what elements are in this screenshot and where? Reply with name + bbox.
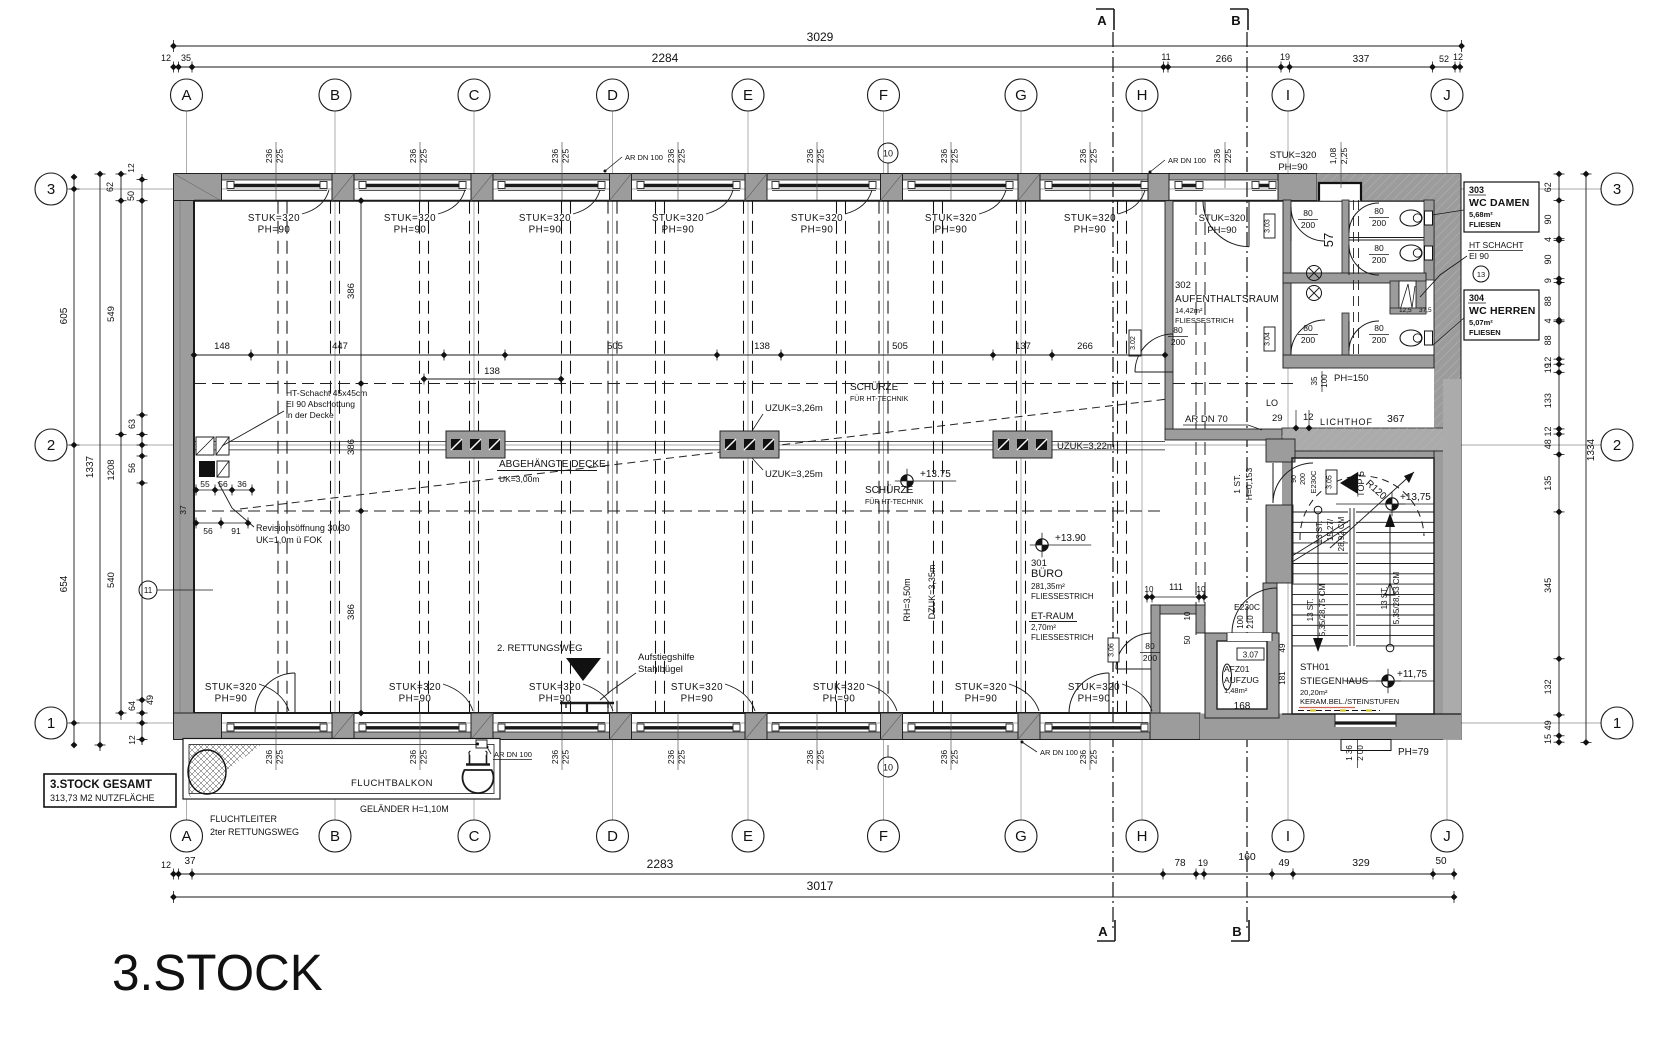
svg-text:266: 266 bbox=[1216, 54, 1233, 65]
svg-text:PH=90: PH=90 bbox=[1207, 225, 1236, 236]
svg-text:80: 80 bbox=[1303, 323, 1313, 333]
svg-text:ABGEHÄNGTE DECKE: ABGEHÄNGTE DECKE bbox=[499, 458, 606, 470]
svg-text:48: 48 bbox=[1543, 439, 1553, 449]
svg-text:3.07: 3.07 bbox=[1243, 651, 1259, 660]
svg-text:225: 225 bbox=[1223, 149, 1233, 163]
svg-text:2284: 2284 bbox=[652, 51, 679, 65]
svg-text:1: 1 bbox=[1613, 715, 1621, 732]
svg-text:236: 236 bbox=[1212, 149, 1222, 163]
svg-text:200: 200 bbox=[1372, 335, 1386, 345]
svg-text:64: 64 bbox=[127, 701, 137, 711]
svg-text:225: 225 bbox=[561, 750, 571, 764]
svg-text:236: 236 bbox=[408, 149, 418, 163]
svg-text:14,42m²: 14,42m² bbox=[1175, 306, 1203, 315]
svg-text:137: 137 bbox=[1015, 341, 1031, 352]
svg-text:50: 50 bbox=[126, 191, 136, 201]
svg-text:FLIESSESTRICH: FLIESSESTRICH bbox=[1031, 633, 1094, 642]
svg-text:236: 236 bbox=[550, 149, 560, 163]
svg-text:10: 10 bbox=[1145, 585, 1154, 594]
svg-text:78: 78 bbox=[1174, 858, 1186, 869]
svg-text:PH=90: PH=90 bbox=[662, 225, 695, 236]
svg-text:PH=90: PH=90 bbox=[215, 694, 248, 705]
svg-text:PH=90: PH=90 bbox=[823, 694, 856, 705]
svg-text:10: 10 bbox=[1197, 585, 1206, 594]
svg-text:AFZ01: AFZ01 bbox=[1224, 664, 1250, 674]
svg-text:49: 49 bbox=[145, 695, 155, 705]
svg-text:19: 19 bbox=[1543, 363, 1553, 373]
svg-text:PH=90: PH=90 bbox=[1278, 162, 1307, 173]
svg-text:+11,75: +11,75 bbox=[1397, 669, 1428, 680]
svg-text:5,07m²: 5,07m² bbox=[1469, 318, 1493, 327]
svg-text:PH=79: PH=79 bbox=[1398, 747, 1429, 758]
svg-text:329: 329 bbox=[1352, 857, 1370, 869]
svg-text:3.03: 3.03 bbox=[1265, 219, 1272, 233]
svg-text:133: 133 bbox=[1543, 393, 1553, 408]
svg-text:E230C: E230C bbox=[1309, 470, 1318, 494]
svg-text:FÜR HT-TECHNIK: FÜR HT-TECHNIK bbox=[865, 498, 924, 506]
svg-text:PH=150: PH=150 bbox=[1334, 373, 1369, 384]
svg-text:549: 549 bbox=[106, 306, 117, 322]
svg-text:62: 62 bbox=[105, 182, 115, 192]
svg-text:1,48m²: 1,48m² bbox=[1224, 686, 1248, 695]
svg-text:35: 35 bbox=[1310, 376, 1319, 385]
svg-text:9: 9 bbox=[1543, 278, 1553, 283]
svg-text:2. RETTUNGSWEG: 2. RETTUNGSWEG bbox=[497, 643, 583, 654]
svg-text:STUK=320: STUK=320 bbox=[519, 213, 571, 224]
svg-text:PH=90: PH=90 bbox=[801, 225, 834, 236]
svg-text:AR DN 100: AR DN 100 bbox=[1040, 748, 1078, 757]
svg-text:10: 10 bbox=[1183, 611, 1192, 620]
svg-text:LICHTHOF: LICHTHOF bbox=[1320, 417, 1373, 427]
svg-text:225: 225 bbox=[816, 750, 826, 764]
svg-text:540: 540 bbox=[106, 572, 117, 588]
svg-text:DZUK=3,35m: DZUK=3,35m bbox=[927, 565, 937, 620]
svg-text:4: 4 bbox=[1543, 237, 1553, 242]
svg-text:138: 138 bbox=[754, 341, 770, 352]
svg-text:225: 225 bbox=[677, 149, 687, 163]
svg-text:1: 1 bbox=[47, 715, 55, 732]
svg-text:C: C bbox=[469, 828, 480, 845]
svg-text:236: 236 bbox=[805, 149, 815, 163]
svg-text:28,92 CM: 28,92 CM bbox=[1337, 516, 1346, 551]
svg-text:PH=90: PH=90 bbox=[258, 225, 291, 236]
svg-text:3.STOCK: 3.STOCK bbox=[112, 944, 323, 1001]
svg-text:G: G bbox=[1015, 828, 1027, 845]
svg-text:200: 200 bbox=[1300, 473, 1307, 485]
svg-text:STIEGENHAUS: STIEGENHAUS bbox=[1300, 676, 1368, 687]
svg-text:138: 138 bbox=[484, 366, 500, 377]
svg-text:13: 13 bbox=[1477, 270, 1485, 279]
svg-text:PH=90: PH=90 bbox=[1074, 225, 1107, 236]
svg-text:56: 56 bbox=[203, 526, 213, 536]
svg-text:WC DAMEN: WC DAMEN bbox=[1469, 197, 1530, 209]
svg-text:E230C: E230C bbox=[1234, 602, 1260, 612]
svg-text:UZUK=3,22m: UZUK=3,22m bbox=[1057, 441, 1115, 452]
svg-text:225: 225 bbox=[419, 750, 429, 764]
svg-text:200: 200 bbox=[1372, 218, 1386, 228]
svg-text:AR DN 100: AR DN 100 bbox=[625, 153, 663, 162]
svg-text:WC HERREN: WC HERREN bbox=[1469, 305, 1536, 317]
svg-text:1334: 1334 bbox=[1586, 438, 1597, 461]
svg-text:100: 100 bbox=[1320, 374, 1329, 388]
svg-text:236: 236 bbox=[264, 149, 274, 163]
svg-text:11: 11 bbox=[144, 586, 153, 595]
svg-text:225: 225 bbox=[816, 149, 826, 163]
svg-text:62: 62 bbox=[1543, 182, 1553, 192]
svg-text:111: 111 bbox=[1169, 582, 1183, 592]
svg-text:E: E bbox=[743, 87, 753, 104]
svg-text:1 36: 1 36 bbox=[1345, 745, 1354, 761]
svg-text:4: 4 bbox=[1543, 318, 1553, 323]
svg-text:49: 49 bbox=[1278, 643, 1287, 652]
svg-text:12: 12 bbox=[161, 860, 171, 870]
svg-text:SCHÜRZE: SCHÜRZE bbox=[850, 381, 899, 393]
svg-text:63: 63 bbox=[127, 419, 137, 429]
svg-text:HT-Schacht 45x45cm: HT-Schacht 45x45cm bbox=[286, 388, 367, 398]
svg-text:H: H bbox=[1137, 828, 1148, 845]
svg-text:I: I bbox=[1286, 87, 1290, 104]
svg-text:AR DN 70: AR DN 70 bbox=[1185, 414, 1228, 425]
svg-text:36: 36 bbox=[237, 479, 247, 489]
svg-text:80: 80 bbox=[1374, 206, 1384, 216]
svg-text:12: 12 bbox=[126, 163, 136, 173]
svg-text:5,35/28,75 CM: 5,35/28,75 CM bbox=[1318, 583, 1327, 636]
svg-text:302: 302 bbox=[1175, 280, 1191, 291]
svg-text:+13.75: +13.75 bbox=[920, 469, 951, 480]
svg-text:654: 654 bbox=[59, 575, 70, 592]
svg-text:H=0,153: H=0,153 bbox=[1244, 468, 1254, 501]
svg-text:PH=90: PH=90 bbox=[965, 694, 998, 705]
svg-text:386: 386 bbox=[346, 283, 357, 299]
svg-text:19: 19 bbox=[1280, 52, 1290, 62]
svg-text:FLUCHTBALKON: FLUCHTBALKON bbox=[351, 778, 433, 789]
svg-text:STUK=320: STUK=320 bbox=[1270, 150, 1317, 161]
svg-text:57: 57 bbox=[1321, 233, 1336, 247]
svg-text:56: 56 bbox=[218, 479, 228, 489]
svg-text:15,27/: 15,27/ bbox=[1326, 518, 1335, 541]
svg-text:+13,75: +13,75 bbox=[1400, 492, 1431, 503]
svg-text:200: 200 bbox=[1171, 337, 1185, 347]
svg-text:80: 80 bbox=[1374, 243, 1384, 253]
svg-text:AR DN 100: AR DN 100 bbox=[1168, 156, 1206, 165]
svg-text:1208: 1208 bbox=[106, 459, 117, 480]
svg-text:52: 52 bbox=[1439, 54, 1449, 64]
svg-text:Revisionsöffnung 30/30: Revisionsöffnung 30/30 bbox=[256, 523, 350, 533]
svg-text:386: 386 bbox=[346, 604, 357, 620]
svg-text:148: 148 bbox=[214, 341, 230, 352]
svg-text:STUK=320: STUK=320 bbox=[205, 682, 257, 693]
svg-text:PH=90: PH=90 bbox=[935, 225, 968, 236]
svg-text:3: 3 bbox=[1613, 181, 1621, 198]
svg-text:313,73 M2 NUTZFLÄCHE: 313,73 M2 NUTZFLÄCHE bbox=[50, 793, 155, 803]
svg-text:I: I bbox=[1286, 828, 1290, 845]
svg-text:LO: LO bbox=[1266, 398, 1278, 408]
svg-text:PH=90: PH=90 bbox=[529, 225, 562, 236]
svg-text:F: F bbox=[879, 828, 888, 845]
svg-text:2,70m²: 2,70m² bbox=[1031, 623, 1056, 632]
svg-text:181: 181 bbox=[1278, 671, 1287, 685]
svg-text:PH=90: PH=90 bbox=[681, 694, 714, 705]
svg-text:345: 345 bbox=[1543, 578, 1553, 593]
svg-text:STUK=320: STUK=320 bbox=[248, 213, 300, 224]
svg-text:13 ST.: 13 ST. bbox=[1306, 599, 1315, 622]
svg-text:236: 236 bbox=[666, 750, 676, 764]
svg-text:605: 605 bbox=[59, 307, 70, 324]
svg-text:225: 225 bbox=[561, 149, 571, 163]
svg-text:UK=1,0m ü FOK: UK=1,0m ü FOK bbox=[256, 535, 322, 545]
svg-text:H: H bbox=[1137, 87, 1148, 104]
svg-text:ET-RAUM: ET-RAUM bbox=[1031, 611, 1074, 622]
svg-text:3017: 3017 bbox=[807, 879, 834, 893]
svg-text:5,68m²: 5,68m² bbox=[1469, 210, 1493, 219]
svg-text:35: 35 bbox=[181, 53, 191, 63]
svg-text:STH01: STH01 bbox=[1300, 662, 1330, 673]
svg-text:10: 10 bbox=[883, 149, 893, 159]
svg-text:90: 90 bbox=[1543, 255, 1553, 265]
svg-text:80: 80 bbox=[1303, 208, 1313, 218]
svg-text:FLIESSESTRICH: FLIESSESTRICH bbox=[1175, 316, 1234, 325]
svg-text:37: 37 bbox=[184, 856, 196, 867]
svg-text:B: B bbox=[1232, 924, 1241, 939]
svg-text:1,08: 1,08 bbox=[1328, 147, 1338, 164]
svg-text:STUK=320: STUK=320 bbox=[791, 213, 843, 224]
svg-text:90: 90 bbox=[1543, 215, 1553, 225]
svg-text:BÜRO: BÜRO bbox=[1031, 568, 1063, 580]
svg-text:3: 3 bbox=[47, 181, 55, 198]
svg-text:225: 225 bbox=[950, 149, 960, 163]
svg-text:225: 225 bbox=[1089, 149, 1099, 163]
svg-text:C: C bbox=[469, 87, 480, 104]
svg-text:236: 236 bbox=[408, 750, 418, 764]
svg-text:STUK=320: STUK=320 bbox=[1199, 213, 1246, 224]
svg-text:SCHÜRZE: SCHÜRZE bbox=[865, 484, 914, 496]
svg-text:236: 236 bbox=[264, 750, 274, 764]
svg-text:AUFZUG: AUFZUG bbox=[1224, 675, 1259, 685]
svg-text:F: F bbox=[879, 87, 888, 104]
svg-text:5,35/28,83 CM: 5,35/28,83 CM bbox=[1392, 571, 1401, 624]
svg-text:UZUK=3,26m: UZUK=3,26m bbox=[765, 403, 823, 414]
svg-text:281,35m²: 281,35m² bbox=[1031, 582, 1065, 591]
svg-text:2283: 2283 bbox=[647, 857, 674, 871]
svg-text:225: 225 bbox=[419, 149, 429, 163]
svg-text:200: 200 bbox=[1301, 335, 1315, 345]
svg-text:2: 2 bbox=[47, 437, 55, 454]
svg-text:80: 80 bbox=[1173, 325, 1183, 335]
svg-text:UK=3,00m: UK=3,00m bbox=[499, 474, 539, 484]
svg-text:Aufstiegshilfe: Aufstiegshilfe bbox=[638, 652, 695, 663]
svg-text:19: 19 bbox=[1198, 858, 1208, 868]
svg-text:90: 90 bbox=[1291, 475, 1298, 483]
svg-text:G: G bbox=[1015, 87, 1027, 104]
svg-text:12: 12 bbox=[1543, 426, 1553, 436]
svg-text:3029: 3029 bbox=[807, 30, 834, 44]
svg-text:88: 88 bbox=[1543, 296, 1553, 306]
svg-text:3.05: 3.05 bbox=[1327, 475, 1334, 489]
svg-text:200: 200 bbox=[1372, 255, 1386, 265]
svg-text:A: A bbox=[181, 87, 191, 104]
svg-text:EI 90: EI 90 bbox=[1469, 251, 1489, 261]
svg-text:STUK=320: STUK=320 bbox=[389, 682, 441, 693]
svg-text:132: 132 bbox=[1543, 679, 1553, 694]
svg-text:20,20m²: 20,20m² bbox=[1300, 688, 1328, 697]
svg-text:367: 367 bbox=[1387, 413, 1405, 425]
svg-text:236: 236 bbox=[1078, 149, 1088, 163]
svg-text:225: 225 bbox=[275, 750, 285, 764]
svg-text:1337: 1337 bbox=[85, 455, 96, 478]
svg-text:49: 49 bbox=[1543, 720, 1553, 730]
svg-text:236: 236 bbox=[939, 149, 949, 163]
svg-text:386: 386 bbox=[346, 439, 357, 455]
svg-text:STUK=320: STUK=320 bbox=[925, 213, 977, 224]
svg-text:AR DN 100: AR DN 100 bbox=[494, 750, 532, 759]
svg-text:KERAM.BEL./STEINSTUFEN: KERAM.BEL./STEINSTUFEN bbox=[1300, 697, 1399, 706]
svg-text:STUK=320: STUK=320 bbox=[1068, 682, 1120, 693]
svg-text:+13.90: +13.90 bbox=[1055, 533, 1086, 544]
svg-text:AUFENTHALTSRAUM: AUFENTHALTSRAUM bbox=[1175, 294, 1279, 305]
svg-text:GELÄNDER H=1,10M: GELÄNDER H=1,10M bbox=[360, 804, 449, 814]
svg-text:505: 505 bbox=[892, 341, 908, 352]
svg-text:13 ST.: 13 ST. bbox=[1315, 521, 1324, 544]
svg-text:447: 447 bbox=[332, 341, 348, 352]
svg-text:J: J bbox=[1443, 87, 1451, 104]
svg-text:50: 50 bbox=[1183, 635, 1192, 644]
svg-text:236: 236 bbox=[1078, 750, 1088, 764]
svg-text:200: 200 bbox=[1143, 653, 1157, 663]
svg-text:A: A bbox=[1098, 924, 1108, 939]
svg-text:in der Decke: in der Decke bbox=[286, 410, 334, 420]
svg-text:HT SCHACHT: HT SCHACHT bbox=[1469, 240, 1524, 250]
svg-text:200: 200 bbox=[1301, 220, 1315, 230]
svg-text:E: E bbox=[743, 828, 753, 845]
svg-text:37: 37 bbox=[178, 505, 188, 515]
svg-text:FÜR HT-TECHNIK: FÜR HT-TECHNIK bbox=[850, 395, 909, 403]
svg-text:236: 236 bbox=[550, 750, 560, 764]
svg-text:337: 337 bbox=[1353, 54, 1370, 65]
svg-text:15: 15 bbox=[1543, 734, 1553, 744]
svg-text:50: 50 bbox=[1435, 856, 1447, 867]
svg-text:PH=90: PH=90 bbox=[399, 694, 432, 705]
svg-text:56: 56 bbox=[127, 463, 137, 473]
svg-text:STUK=320: STUK=320 bbox=[1064, 213, 1116, 224]
svg-text:B: B bbox=[1231, 13, 1240, 28]
svg-text:STUK=320: STUK=320 bbox=[671, 682, 723, 693]
svg-text:236: 236 bbox=[666, 149, 676, 163]
svg-text:FLIESSESTRICH: FLIESSESTRICH bbox=[1031, 592, 1094, 601]
svg-text:80: 80 bbox=[1145, 641, 1155, 651]
svg-text:2: 2 bbox=[1613, 437, 1621, 454]
svg-text:B: B bbox=[330, 87, 340, 104]
svg-text:55: 55 bbox=[200, 479, 210, 489]
svg-text:80: 80 bbox=[1374, 323, 1384, 333]
svg-text:225: 225 bbox=[677, 750, 687, 764]
svg-text:STUK=320: STUK=320 bbox=[529, 682, 581, 693]
svg-text:168: 168 bbox=[1234, 701, 1251, 712]
svg-text:11: 11 bbox=[1161, 52, 1170, 62]
svg-text:13 ST.: 13 ST. bbox=[1380, 587, 1389, 610]
svg-text:12: 12 bbox=[1303, 412, 1314, 423]
svg-text:12: 12 bbox=[127, 735, 137, 745]
svg-text:12: 12 bbox=[161, 53, 171, 63]
svg-text:STUK=320: STUK=320 bbox=[384, 213, 436, 224]
svg-text:12: 12 bbox=[1453, 52, 1463, 62]
svg-text:RH=3,50m: RH=3,50m bbox=[902, 578, 912, 621]
svg-text:FLIESEN: FLIESEN bbox=[1469, 220, 1501, 229]
svg-text:266: 266 bbox=[1077, 341, 1093, 352]
svg-text:A: A bbox=[181, 828, 191, 845]
svg-text:100: 100 bbox=[1236, 615, 1245, 629]
svg-text:303: 303 bbox=[1469, 185, 1484, 195]
svg-text:225: 225 bbox=[950, 750, 960, 764]
svg-text:PH=90: PH=90 bbox=[394, 225, 427, 236]
svg-text:135: 135 bbox=[1543, 476, 1553, 491]
svg-text:PH=90: PH=90 bbox=[1078, 694, 1111, 705]
svg-text:29: 29 bbox=[1272, 413, 1283, 424]
svg-text:Stahlbügel: Stahlbügel bbox=[638, 664, 683, 675]
svg-text:STUK=320: STUK=320 bbox=[955, 682, 1007, 693]
svg-text:160: 160 bbox=[1238, 851, 1256, 863]
svg-text:FLUCHTLEITER: FLUCHTLEITER bbox=[210, 814, 278, 824]
svg-text:A: A bbox=[1097, 13, 1107, 28]
svg-text:91: 91 bbox=[231, 526, 241, 536]
svg-text:EI 90 Abschottung: EI 90 Abschottung bbox=[286, 399, 355, 409]
svg-text:210: 210 bbox=[1246, 615, 1255, 629]
svg-text:2,25: 2,25 bbox=[1339, 147, 1349, 164]
svg-text:STUK=320: STUK=320 bbox=[813, 682, 865, 693]
svg-text:10: 10 bbox=[883, 763, 893, 773]
svg-text:236: 236 bbox=[939, 750, 949, 764]
svg-text:37,5: 37,5 bbox=[1419, 307, 1432, 314]
svg-text:505: 505 bbox=[607, 341, 623, 352]
svg-text:UZUK=3,25m: UZUK=3,25m bbox=[765, 469, 823, 480]
svg-text:FLIESEN: FLIESEN bbox=[1469, 328, 1501, 337]
svg-text:3.06: 3.06 bbox=[1109, 643, 1116, 657]
svg-text:88: 88 bbox=[1543, 335, 1553, 345]
svg-text:1 ST.: 1 ST. bbox=[1232, 474, 1242, 493]
svg-text:3.04: 3.04 bbox=[1265, 332, 1272, 346]
svg-text:D: D bbox=[607, 87, 618, 104]
svg-text:2ter RETTUNGSWEG: 2ter RETTUNGSWEG bbox=[210, 827, 299, 837]
svg-text:225: 225 bbox=[1089, 750, 1099, 764]
svg-text:12,5: 12,5 bbox=[1399, 307, 1412, 314]
svg-text:B: B bbox=[330, 828, 340, 845]
svg-text:D: D bbox=[607, 828, 618, 845]
svg-text:STUK=320: STUK=320 bbox=[652, 213, 704, 224]
svg-text:225: 225 bbox=[275, 149, 285, 163]
svg-text:236: 236 bbox=[805, 750, 815, 764]
svg-text:49: 49 bbox=[1278, 858, 1290, 869]
svg-text:3.STOCK GESAMT: 3.STOCK GESAMT bbox=[50, 779, 152, 791]
svg-text:304: 304 bbox=[1469, 293, 1484, 303]
svg-text:3.02: 3.02 bbox=[1130, 336, 1137, 350]
svg-text:J: J bbox=[1443, 828, 1451, 845]
